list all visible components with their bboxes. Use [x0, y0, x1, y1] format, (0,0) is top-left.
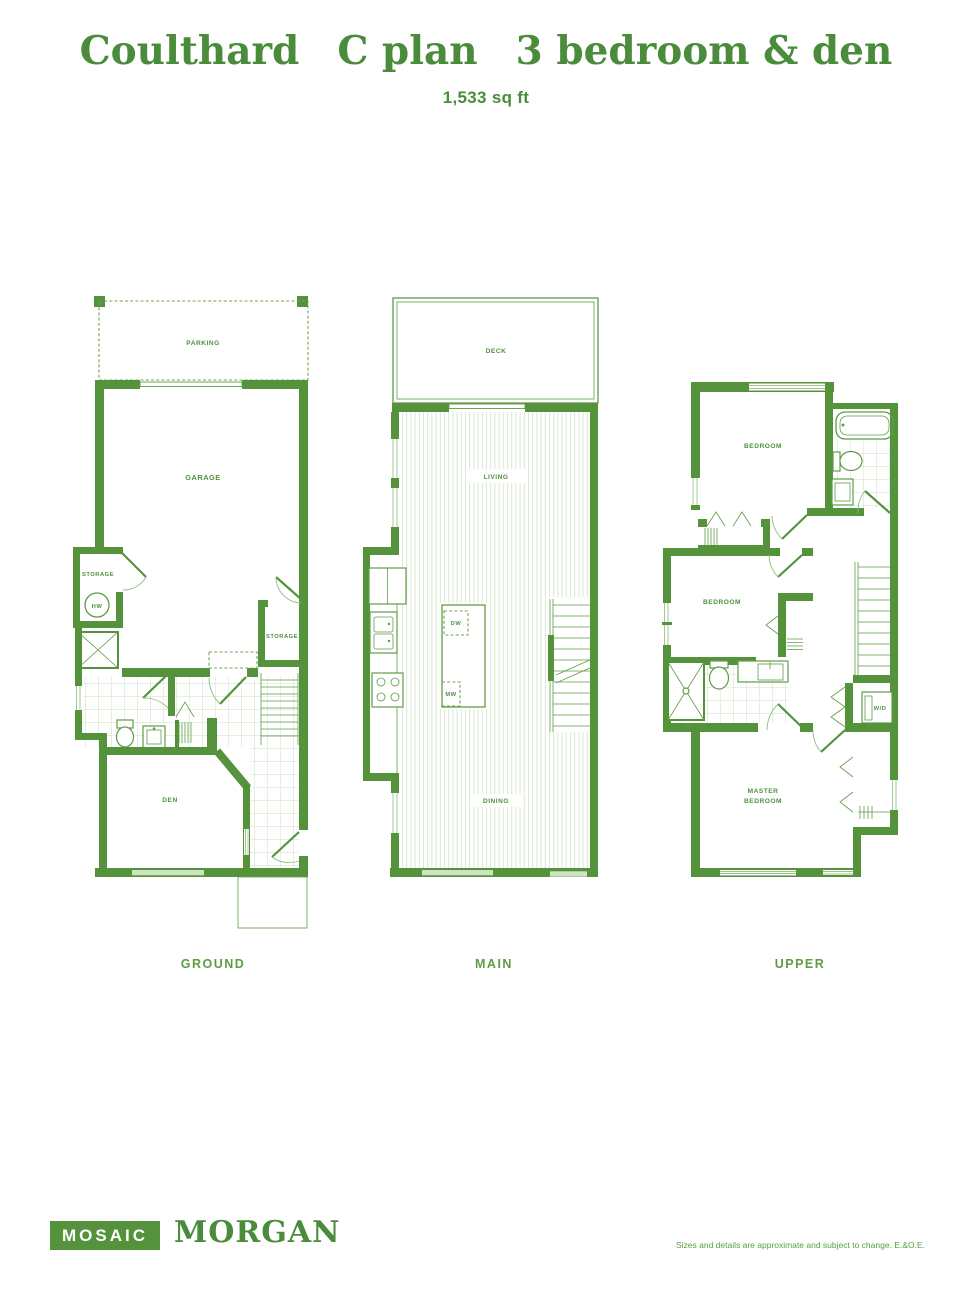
sliding-door — [449, 404, 525, 409]
living-label: LIVING — [484, 474, 509, 481]
west-wall — [75, 628, 82, 733]
entry-tile-floor — [250, 747, 299, 868]
bedroom2-label: BEDROOM — [703, 599, 741, 606]
stove — [372, 673, 403, 707]
parking-label: PARKING — [186, 340, 219, 347]
toilet-bowl — [117, 727, 134, 747]
dw-label: DW — [451, 621, 462, 627]
master-label-2: BEDROOM — [744, 798, 782, 805]
garage-door — [140, 382, 242, 387]
laundry-closet: W/D — [831, 683, 898, 732]
storage-left-label: STORAGE — [82, 572, 114, 578]
entry-porch — [238, 877, 307, 928]
toilet-bowl — [840, 452, 862, 471]
wd-label: W/D — [874, 706, 887, 712]
disclaimer-text: Sizes and details are approximate and su… — [676, 1240, 925, 1250]
main-floor-caption: MAIN — [414, 957, 574, 971]
plan-letter: C plan — [337, 28, 477, 74]
floorplan-sheet: CoulthardC plan3 bedroom & den 1,533 sq … — [0, 0, 972, 1296]
ground-floor-plan: PARKING GARAGE STORAGE HW — [72, 293, 317, 938]
parking-area: PARKING — [94, 296, 308, 380]
deck-area: DECK — [393, 298, 598, 403]
garage-label: GARAGE — [185, 473, 220, 482]
bedroom1-label: BEDROOM — [744, 443, 782, 450]
dining-label: DINING — [483, 798, 509, 805]
page-title: CoulthardC plan3 bedroom & den — [0, 28, 972, 74]
toilet-tank — [833, 452, 840, 471]
storage-right-room: STORAGE — [258, 577, 305, 667]
master-label-1: MASTER — [748, 788, 779, 795]
upper-floor-caption: UPPER — [720, 957, 880, 971]
ensuite-toilet-bowl — [710, 667, 729, 689]
angled-wall — [217, 751, 248, 788]
faucet — [153, 727, 156, 730]
bedroom2: BEDROOM — [662, 548, 813, 665]
main-floor-plan: DECK — [360, 293, 605, 888]
den-label: DEN — [162, 797, 177, 804]
ground-floor-caption: GROUND — [133, 957, 293, 971]
upper-floor-plan: BEDROOM BEDROOM — [655, 375, 905, 885]
project-name: MORGAN — [174, 1215, 341, 1250]
plan-type: 3 bedroom & den — [516, 28, 893, 74]
deck-label: DECK — [486, 348, 507, 355]
ground-shower — [78, 632, 118, 668]
storage-right-label: STORAGE — [266, 634, 298, 640]
mw-label: MW — [445, 692, 456, 698]
hall-tile-floor — [82, 677, 299, 747]
plan-name: Coulthard — [80, 28, 300, 74]
mosaic-logo: MOSAIC — [50, 1221, 160, 1250]
living-window-2 — [393, 488, 397, 527]
square-footage: 1,533 sq ft — [0, 88, 972, 108]
storage-left-room: STORAGE HW — [73, 547, 146, 628]
hw-label: HW — [92, 604, 103, 610]
living-window-1 — [393, 439, 397, 478]
bedroom1: BEDROOM — [698, 443, 807, 553]
master-bedroom: MASTER BEDROOM — [744, 730, 890, 819]
